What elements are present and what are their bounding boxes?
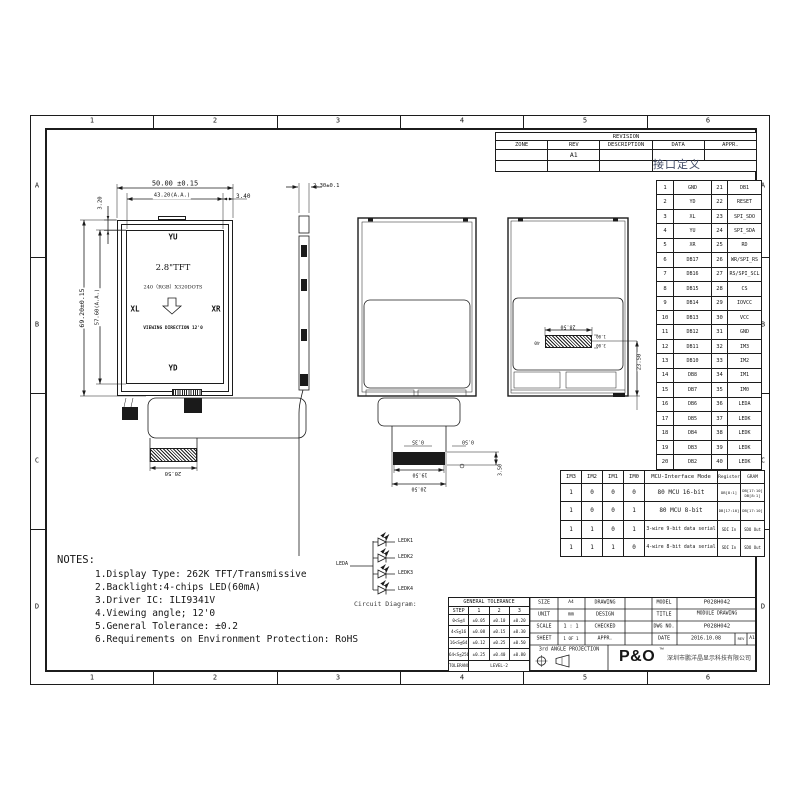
model-value: P028H042: [704, 600, 731, 606]
info-unit-label: UNIT: [538, 613, 550, 618]
mcu-header-im0: IM0: [624, 471, 645, 484]
date-value: 2016.10.08: [691, 637, 721, 642]
mcu-im-bit: 0: [624, 538, 645, 556]
info-scale-label: SCALE: [536, 625, 551, 630]
tolerance-header: 1: [469, 607, 489, 615]
dim-pad-c: 19.50: [411, 472, 428, 477]
revision-cell: [496, 161, 548, 172]
dim-fpc-width: 20.50: [164, 469, 183, 475]
pin-signal: DB6: [674, 397, 712, 411]
pin-signal: DB4: [674, 426, 712, 440]
pin-signal: LEDA: [728, 397, 762, 411]
pin-signal: DB12: [674, 325, 712, 339]
mcu-im-bit: 1: [561, 538, 582, 556]
title-value: MODULE DRAWING: [697, 613, 737, 618]
revision-table: REVISION ZONE REV DESCRIPTION DATA APPR.…: [495, 132, 757, 172]
pin-signal: IOVCC: [728, 296, 762, 310]
tolerance-header: 2: [489, 607, 509, 615]
pin-no: 6: [657, 253, 674, 267]
pin-signal: YU: [674, 224, 712, 238]
dim-pin-mark: 40: [534, 339, 539, 344]
tolerance-value: ±0.15: [489, 626, 509, 637]
company-name: 深圳市鹏洋晶显示科技有限公司: [667, 656, 751, 662]
dim-offset: 23.50: [637, 353, 643, 372]
pin-no: 38: [712, 426, 728, 440]
revision-cell: [548, 161, 600, 172]
revision-rev-value: A1: [548, 150, 600, 161]
dim-small-2: 3.00: [596, 343, 606, 347]
led-cathode-label: LEDK3: [398, 571, 413, 576]
pin-signal: DB15: [674, 282, 712, 296]
tolerance-value: ±0.40: [489, 649, 509, 660]
tolerance-step: 16<S≦64: [449, 637, 469, 648]
tolerance-value: ±0.30: [509, 626, 529, 637]
pin-signal: DB14: [674, 296, 712, 310]
pin-no: 20: [657, 455, 674, 470]
dim-small-1: 1.00: [596, 334, 606, 338]
zone-col-label: 4: [460, 118, 464, 125]
mcu-header-im2: IM2: [582, 471, 603, 484]
mcu-gram: SDO Out: [741, 538, 765, 556]
pin-no: 2: [657, 195, 674, 209]
pin-signal: LEDK: [728, 426, 762, 440]
note-item: 2.Backlight:4-chips LED(60mA): [95, 583, 261, 593]
mcu-header-mode: MCU-Interface Mode: [645, 471, 718, 484]
pin-no: 18: [657, 426, 674, 440]
dim-aa-width: 43.20(A.A.): [153, 193, 191, 199]
pin-signal: IM2: [728, 354, 762, 368]
zone-col-label: 3: [336, 118, 340, 125]
pin-no: 1: [657, 181, 674, 195]
zone-col-label: 5: [583, 118, 587, 125]
mcu-register: SDI In: [718, 538, 741, 556]
pin-no: 35: [712, 383, 728, 397]
pin-table: 1GND21DB1 2YD22RESET 3XL23SPI_SDO 4YU24S…: [656, 180, 762, 470]
tolerance-footer-value: LEVEL-2: [469, 660, 530, 671]
note-item: 6.Requirements on Environment Protection…: [95, 635, 358, 645]
led-anode-label: LEDA: [328, 562, 348, 567]
info-sheet-label: SHEET: [536, 637, 551, 642]
drawing-sheet: 1 2 3 4 5 6 1 2 3 4 5 6 A B C D A B C D: [0, 0, 800, 800]
pin-no: 28: [712, 282, 728, 296]
tolerance-header: 3: [509, 607, 529, 615]
tolerance-value: ±0.20: [509, 615, 529, 626]
zone-row-label: A: [35, 183, 39, 190]
note-item: 1.Display Type: 262K TFT/Transmissive: [95, 570, 307, 580]
pin-no: 37: [712, 412, 728, 426]
pin-no: 33: [712, 354, 728, 368]
tolerance-value: ±0.10: [489, 615, 509, 626]
pin-no: 16: [657, 397, 674, 411]
title-label: TITLE: [656, 613, 671, 618]
pin-signal: LEDK: [728, 412, 762, 426]
tolerance-value: ±0.80: [509, 649, 529, 660]
pin-signal: GND: [674, 181, 712, 195]
pin-signal: XR: [674, 238, 712, 252]
dim-pad-width2: 28.50: [559, 324, 576, 329]
zone-col-label: 3: [336, 675, 340, 682]
zone-row-label: B: [35, 322, 39, 329]
pin-no: 25: [712, 238, 728, 252]
pin-signal: DB10: [674, 354, 712, 368]
zone-row-label: C: [761, 458, 765, 465]
mcu-header-im3: IM3: [561, 471, 582, 484]
note-item: 3.Driver IC: ILI9341V: [95, 596, 215, 606]
dim-pad-b: 0.50: [462, 439, 474, 444]
zone-col-label: 6: [706, 675, 710, 682]
dim-pad-d: 20.50: [410, 486, 427, 491]
pin-signal: LEDK: [728, 455, 762, 470]
zone-col-label: 6: [706, 118, 710, 125]
tolerance-value: ±0.50: [509, 637, 529, 648]
pin-no: 5: [657, 238, 674, 252]
zone-col-label: 1: [90, 675, 94, 682]
pin-signal: IM0: [728, 383, 762, 397]
dim-edge-right: 3.40: [236, 194, 250, 200]
pin-signal: DB8: [674, 368, 712, 382]
revision-header-appr: APPR.: [704, 141, 756, 150]
tolerance-header-step: STEP: [449, 607, 469, 615]
touch-label-top: YU: [168, 233, 177, 241]
info-appr-label: APPR.: [597, 637, 612, 642]
pin-no: 8: [657, 282, 674, 296]
pin-no: 34: [712, 368, 728, 382]
pin-signal: RD: [728, 238, 762, 252]
tolerance-value: ±0.08: [469, 626, 489, 637]
mcu-im-bit: 0: [603, 520, 624, 538]
pin-signal: DB1: [728, 181, 762, 195]
pin-no: 4: [657, 224, 674, 238]
dim-aa-height: 57.60(A.A.): [95, 288, 101, 326]
dim-edge-top: 3.20: [98, 195, 104, 210]
tolerance-title: GENERAL TOLERANCE: [449, 598, 530, 607]
pin-no: 12: [657, 339, 674, 353]
dwg-no-value: P028H042: [704, 624, 731, 630]
mcu-im-bit: 0: [582, 484, 603, 502]
mcu-im-bit: 1: [624, 502, 645, 520]
zone-row-label: A: [761, 183, 765, 190]
pin-signal: VCC: [728, 310, 762, 324]
pin-signal: WR/SPI_RS: [728, 253, 762, 267]
revision-cell: [600, 150, 652, 161]
tolerance-step: 4<S≦16: [449, 626, 469, 637]
display-resolution-label: 240（RGB）X320DOTS: [144, 286, 203, 291]
mcu-mode: 3-wire 9-bit data serial: [645, 520, 718, 538]
dim-pad-a: 0.35: [412, 439, 424, 444]
info-unit-value: mm: [568, 613, 574, 618]
pin-signal: DB2: [674, 455, 712, 470]
revision-cell: [704, 150, 756, 161]
touch-label-right: XR: [211, 305, 220, 313]
interface-definition-stamp: 接口定义: [653, 159, 701, 170]
mcu-im-bit: 0: [603, 502, 624, 520]
dim-height: 69.20±0.15: [79, 287, 86, 328]
circuit-diagram-caption: Circuit Diagram:: [354, 601, 417, 608]
info-drawing-label: DRAWING: [594, 601, 615, 606]
note-item: 5.General Tolerance: ±0.2: [95, 622, 238, 632]
pin-signal: GND: [728, 325, 762, 339]
zone-col-label: 5: [583, 675, 587, 682]
model-label: MODEL: [656, 601, 671, 606]
pin-no: 40: [712, 455, 728, 470]
pin-no: 36: [712, 397, 728, 411]
revision-header-zone: ZONE: [496, 141, 548, 150]
note-item: 4.Viewing angle; 12'0: [95, 609, 215, 619]
pin-signal: DB17: [674, 253, 712, 267]
pin-signal: RESET: [728, 195, 762, 209]
zone-col-label: 2: [213, 675, 217, 682]
projection-label: 3rd ANGLE PROJECTION: [539, 648, 599, 653]
pin-signal: DB16: [674, 267, 712, 281]
pin-signal: YD: [674, 195, 712, 209]
pin-signal: CS: [728, 282, 762, 296]
pin-signal: SPI_SDA: [728, 224, 762, 238]
pin-no: 3: [657, 209, 674, 223]
tolerance-value: ±0.05: [469, 615, 489, 626]
pin-no: 32: [712, 339, 728, 353]
pin-no: 9: [657, 296, 674, 310]
general-tolerance-table: GENERAL TOLERANCE STEP 1 2 3 0<S≦4 ±0.05…: [448, 597, 530, 672]
revision-header-data: DATA: [652, 141, 704, 150]
mcu-register: SDI In: [718, 520, 741, 538]
dim-thickness: 2.30±0.1: [313, 184, 340, 190]
touch-label-bottom: YD: [168, 364, 177, 372]
revision-cell: [496, 150, 548, 161]
info-size-value: A4: [568, 601, 573, 606]
touch-label-left: XL: [130, 305, 139, 313]
info-sheet-value: 1 OF 1: [563, 637, 578, 641]
mcu-gram: SDO Out: [741, 520, 765, 538]
led-cathode-label: LEDK1: [398, 539, 413, 544]
info-scale-value: 1 : 1: [563, 625, 578, 630]
mcu-gram: DB[17:10]DB[8:1]: [741, 484, 765, 502]
tolerance-value: ±0.25: [489, 637, 509, 648]
rev-value: A1: [749, 637, 754, 642]
pin-signal: IM1: [728, 368, 762, 382]
logo-trademark: ™: [659, 648, 664, 653]
pin-no: 31: [712, 325, 728, 339]
led-cathode-label: LEDK2: [398, 555, 413, 560]
tolerance-value: ±0.12: [469, 637, 489, 648]
mcu-register: DB[8:1]: [718, 484, 741, 502]
zone-col-label: 1: [90, 118, 94, 125]
led-cathode-label: LEDK4: [398, 587, 413, 592]
tolerance-footer-label: TOLERANCE: [449, 660, 469, 671]
revision-title: REVISION: [496, 133, 757, 141]
zone-row-label: C: [35, 458, 39, 465]
mcu-register: DB[17:10]: [718, 502, 741, 520]
mcu-im-bit: 1: [582, 538, 603, 556]
pin-no: 14: [657, 368, 674, 382]
dim-pad-e: 3.50: [499, 464, 504, 476]
mcu-gram-line: DB[17:10]: [741, 488, 764, 493]
pin-signal: DB11: [674, 339, 712, 353]
pin-signal: RS/SPI_SCL: [728, 267, 762, 281]
tolerance-value: ±0.25: [469, 649, 489, 660]
mcu-header-gram: GRAM: [741, 471, 765, 484]
info-design-label: DESIGN: [596, 613, 614, 618]
info-size-label: SIZE: [538, 601, 550, 606]
pin-no: 23: [712, 209, 728, 223]
viewing-direction-label: VIEWING DIRECTION 12'0: [143, 327, 203, 332]
pin-no: 26: [712, 253, 728, 267]
tolerance-step: 64<S≦256: [449, 649, 469, 660]
pin-no: 19: [657, 440, 674, 454]
pin-signal: IM3: [728, 339, 762, 353]
pin-signal: DB7: [674, 383, 712, 397]
mcu-header-im1: IM1: [603, 471, 624, 484]
pin-no: 22: [712, 195, 728, 209]
revision-header-desc: DESCRIPTION: [600, 141, 652, 150]
pin-no: 15: [657, 383, 674, 397]
mcu-im-bit: 1: [561, 484, 582, 502]
pin-no: 10: [657, 310, 674, 324]
pin-signal: DB13: [674, 310, 712, 324]
pin-no: 11: [657, 325, 674, 339]
mcu-im-bit: 1: [561, 502, 582, 520]
mcu-gram: DB[17:10]: [741, 502, 765, 520]
pin-signal: XL: [674, 209, 712, 223]
mcu-im-bit: 0: [603, 484, 624, 502]
tolerance-step: 0<S≦4: [449, 615, 469, 626]
zone-col-label: 4: [460, 675, 464, 682]
mcu-im-bit: 0: [582, 502, 603, 520]
company-logo: P&O: [619, 649, 655, 665]
mcu-gram-line: DB[8:1]: [741, 493, 764, 498]
pin-no: 13: [657, 354, 674, 368]
mcu-header-register: Register: [718, 471, 741, 484]
pin-no: 17: [657, 412, 674, 426]
date-label: DATE: [658, 637, 670, 642]
mcu-im-bit: 1: [603, 538, 624, 556]
mcu-im-bit: 1: [582, 520, 603, 538]
zone-row-label: D: [35, 604, 39, 611]
pin-no: 39: [712, 440, 728, 454]
display-size-label: 2.8"TFT: [156, 264, 191, 273]
pin-no: 30: [712, 310, 728, 324]
info-checked-label: CHECKED: [594, 625, 615, 630]
zone-col-label: 2: [213, 118, 217, 125]
pin-signal: LEDK: [728, 440, 762, 454]
dwg-no-label: DWG NO.: [653, 625, 674, 630]
revision-header-rev: REV: [548, 141, 600, 150]
notes-title: NOTES:: [57, 555, 95, 566]
revision-cell: [600, 161, 652, 172]
zone-row-label: D: [761, 604, 765, 611]
pin-no: 29: [712, 296, 728, 310]
mcu-mode: 80 MCU 16-bit: [645, 484, 718, 502]
mcu-im-bit: 0: [624, 484, 645, 502]
mcu-im-bit: 1: [561, 520, 582, 538]
pin-no: 7: [657, 267, 674, 281]
pin-no: 24: [712, 224, 728, 238]
mcu-im-bit: 1: [624, 520, 645, 538]
dim-width: 50.00 ±0.15: [151, 181, 199, 188]
pin-no: 27: [712, 267, 728, 281]
mcu-mode: 4-wire 8-bit data serial: [645, 538, 718, 556]
mcu-interface-table: IM3 IM2 IM1 IM0 MCU-Interface Mode Regis…: [560, 470, 765, 557]
zone-row-label: B: [761, 322, 765, 329]
pin-signal: DB5: [674, 412, 712, 426]
rev-label: REV: [738, 637, 745, 641]
pin-signal: DB3: [674, 440, 712, 454]
pin-signal: SPI_SDO: [728, 209, 762, 223]
pin-no: 21: [712, 181, 728, 195]
mcu-mode: 80 MCU 8-bit: [645, 502, 718, 520]
